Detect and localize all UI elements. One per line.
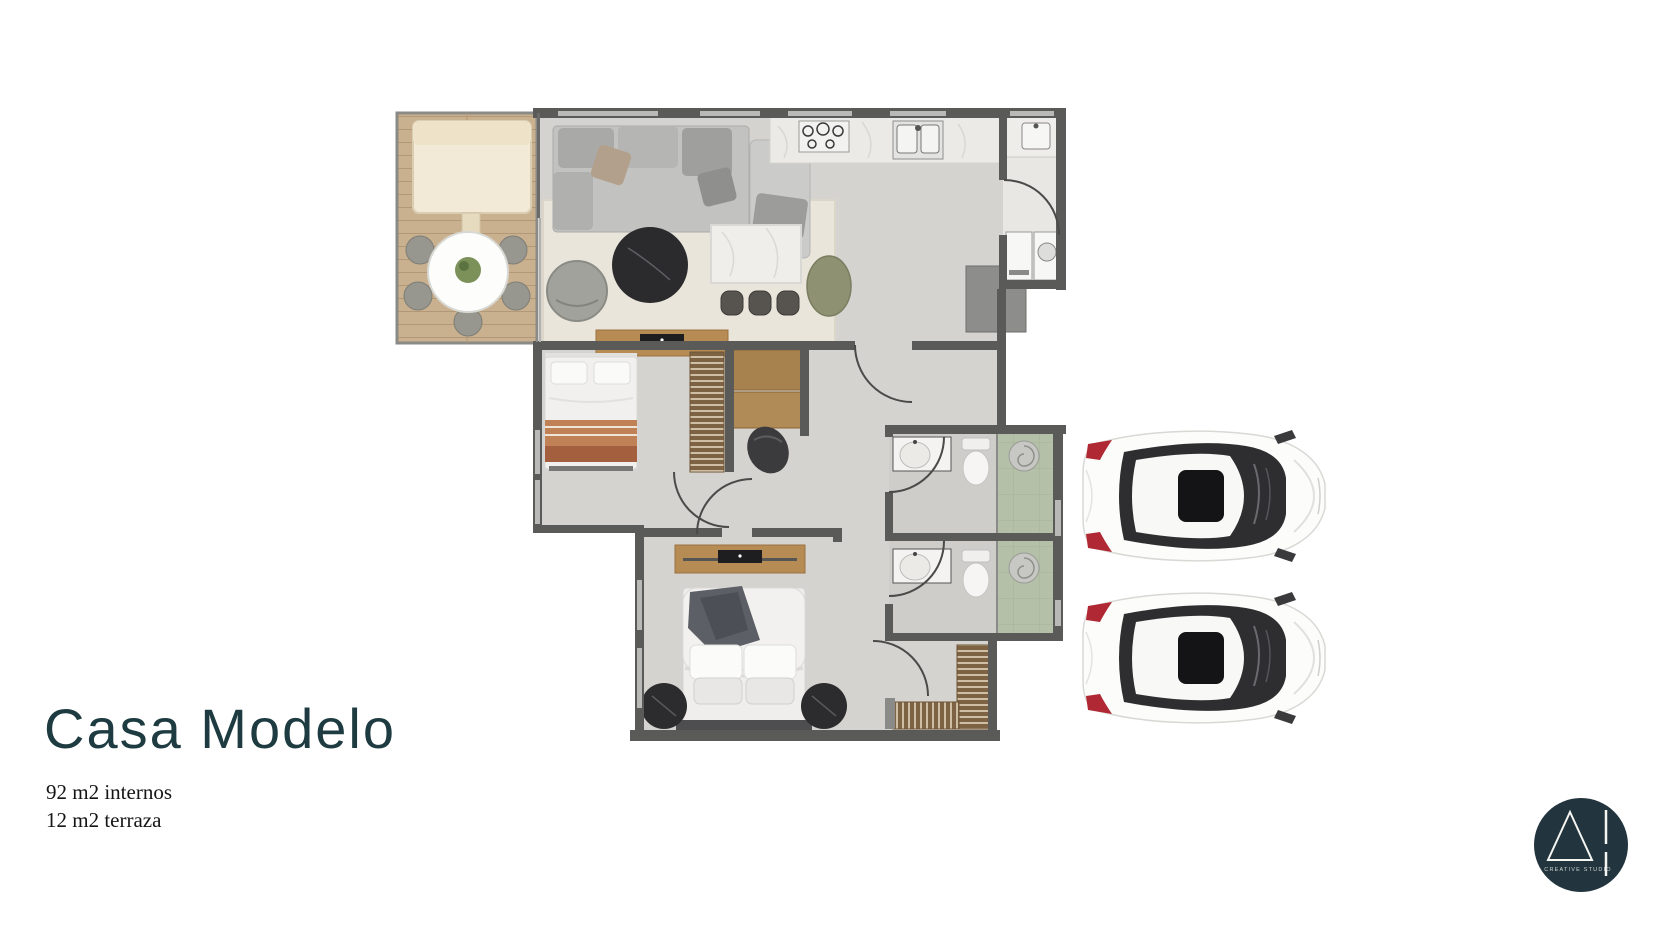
car-top-view-1 <box>1083 430 1325 562</box>
stove <box>799 121 849 152</box>
terrace <box>397 113 537 343</box>
lounge-chair <box>547 261 607 321</box>
page-title: Casa Modelo <box>44 696 396 761</box>
studio-logo: CREATIVE STUDIO <box>1534 798 1628 892</box>
plant <box>455 257 481 283</box>
bathroom-1 <box>889 429 1055 533</box>
area-line-terrace: 12 m2 terraza <box>46 806 172 834</box>
logo-circle <box>1534 798 1628 892</box>
car-top-view-2 <box>1083 592 1325 724</box>
floorplan-graphic: CREATIVE STUDIO <box>0 0 1657 932</box>
parking <box>1083 430 1325 724</box>
wardrobe-wood <box>733 350 809 436</box>
ottoman <box>807 256 851 316</box>
closet-bedroom1 <box>690 352 724 472</box>
bar-stool <box>721 291 743 315</box>
bed-2 <box>676 586 812 732</box>
presentation-slide: CREATIVE STUDIO Casa Modelo 92 m2 intern… <box>0 0 1657 932</box>
area-details: 92 m2 internos 12 m2 terraza <box>46 778 172 834</box>
toilet-2 <box>962 550 990 597</box>
closet-bedroom2-horizontal <box>893 702 959 729</box>
kitchen-sink <box>893 121 943 159</box>
area-line-internal: 92 m2 internos <box>46 778 172 806</box>
bar-stool <box>777 291 799 315</box>
kitchen-island <box>711 225 801 315</box>
bar-stool <box>749 291 771 315</box>
tv-console-bedroom2 <box>675 545 805 573</box>
bathroom-2 <box>889 541 1055 637</box>
toilet-1 <box>962 438 990 485</box>
closet-bedroom2-vertical <box>957 645 991 729</box>
coffee-table <box>612 227 688 303</box>
bed-1 <box>545 353 637 471</box>
logo-studio-label: CREATIVE STUDIO <box>1544 867 1611 873</box>
